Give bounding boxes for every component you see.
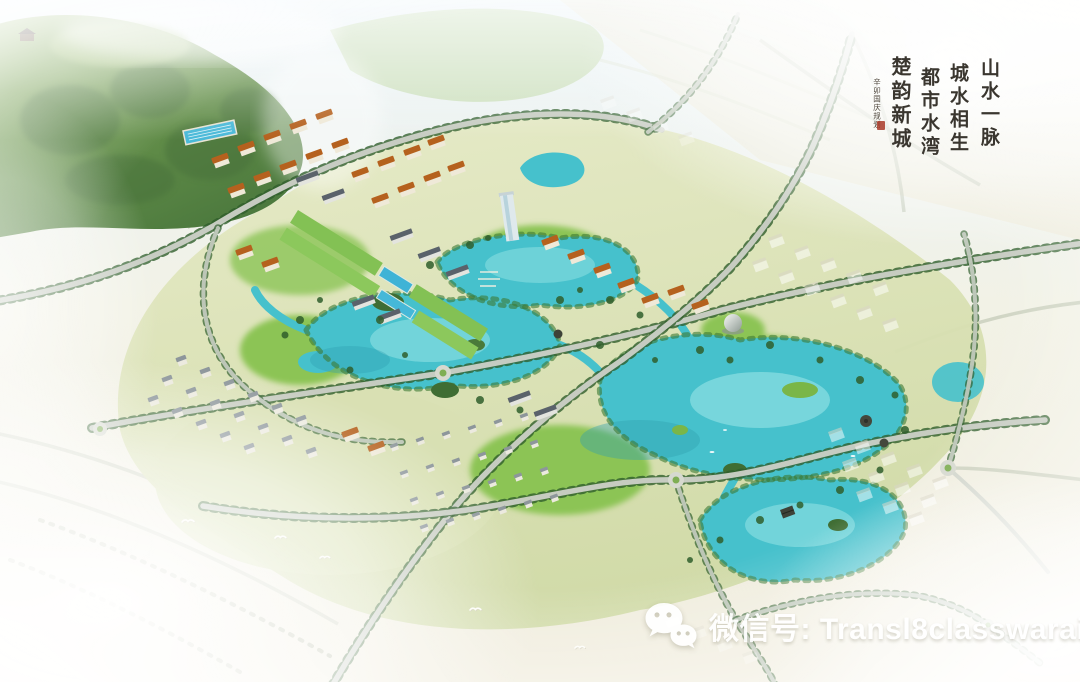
wechat-icon bbox=[644, 602, 697, 649]
masterplan-image: 山水一脉 城水相生 都市水湾 楚韵新城 辛卯国庆规划 微信号: Transl8c… bbox=[0, 0, 1080, 682]
wechat-id-text: 微信号: Transl8classwaraid bbox=[709, 604, 1080, 648]
aerial-rendering bbox=[0, 0, 1080, 682]
wechat-watermark: 微信号: Transl8classwaraid bbox=[644, 602, 1080, 649]
mist-overlay bbox=[0, 0, 1080, 682]
